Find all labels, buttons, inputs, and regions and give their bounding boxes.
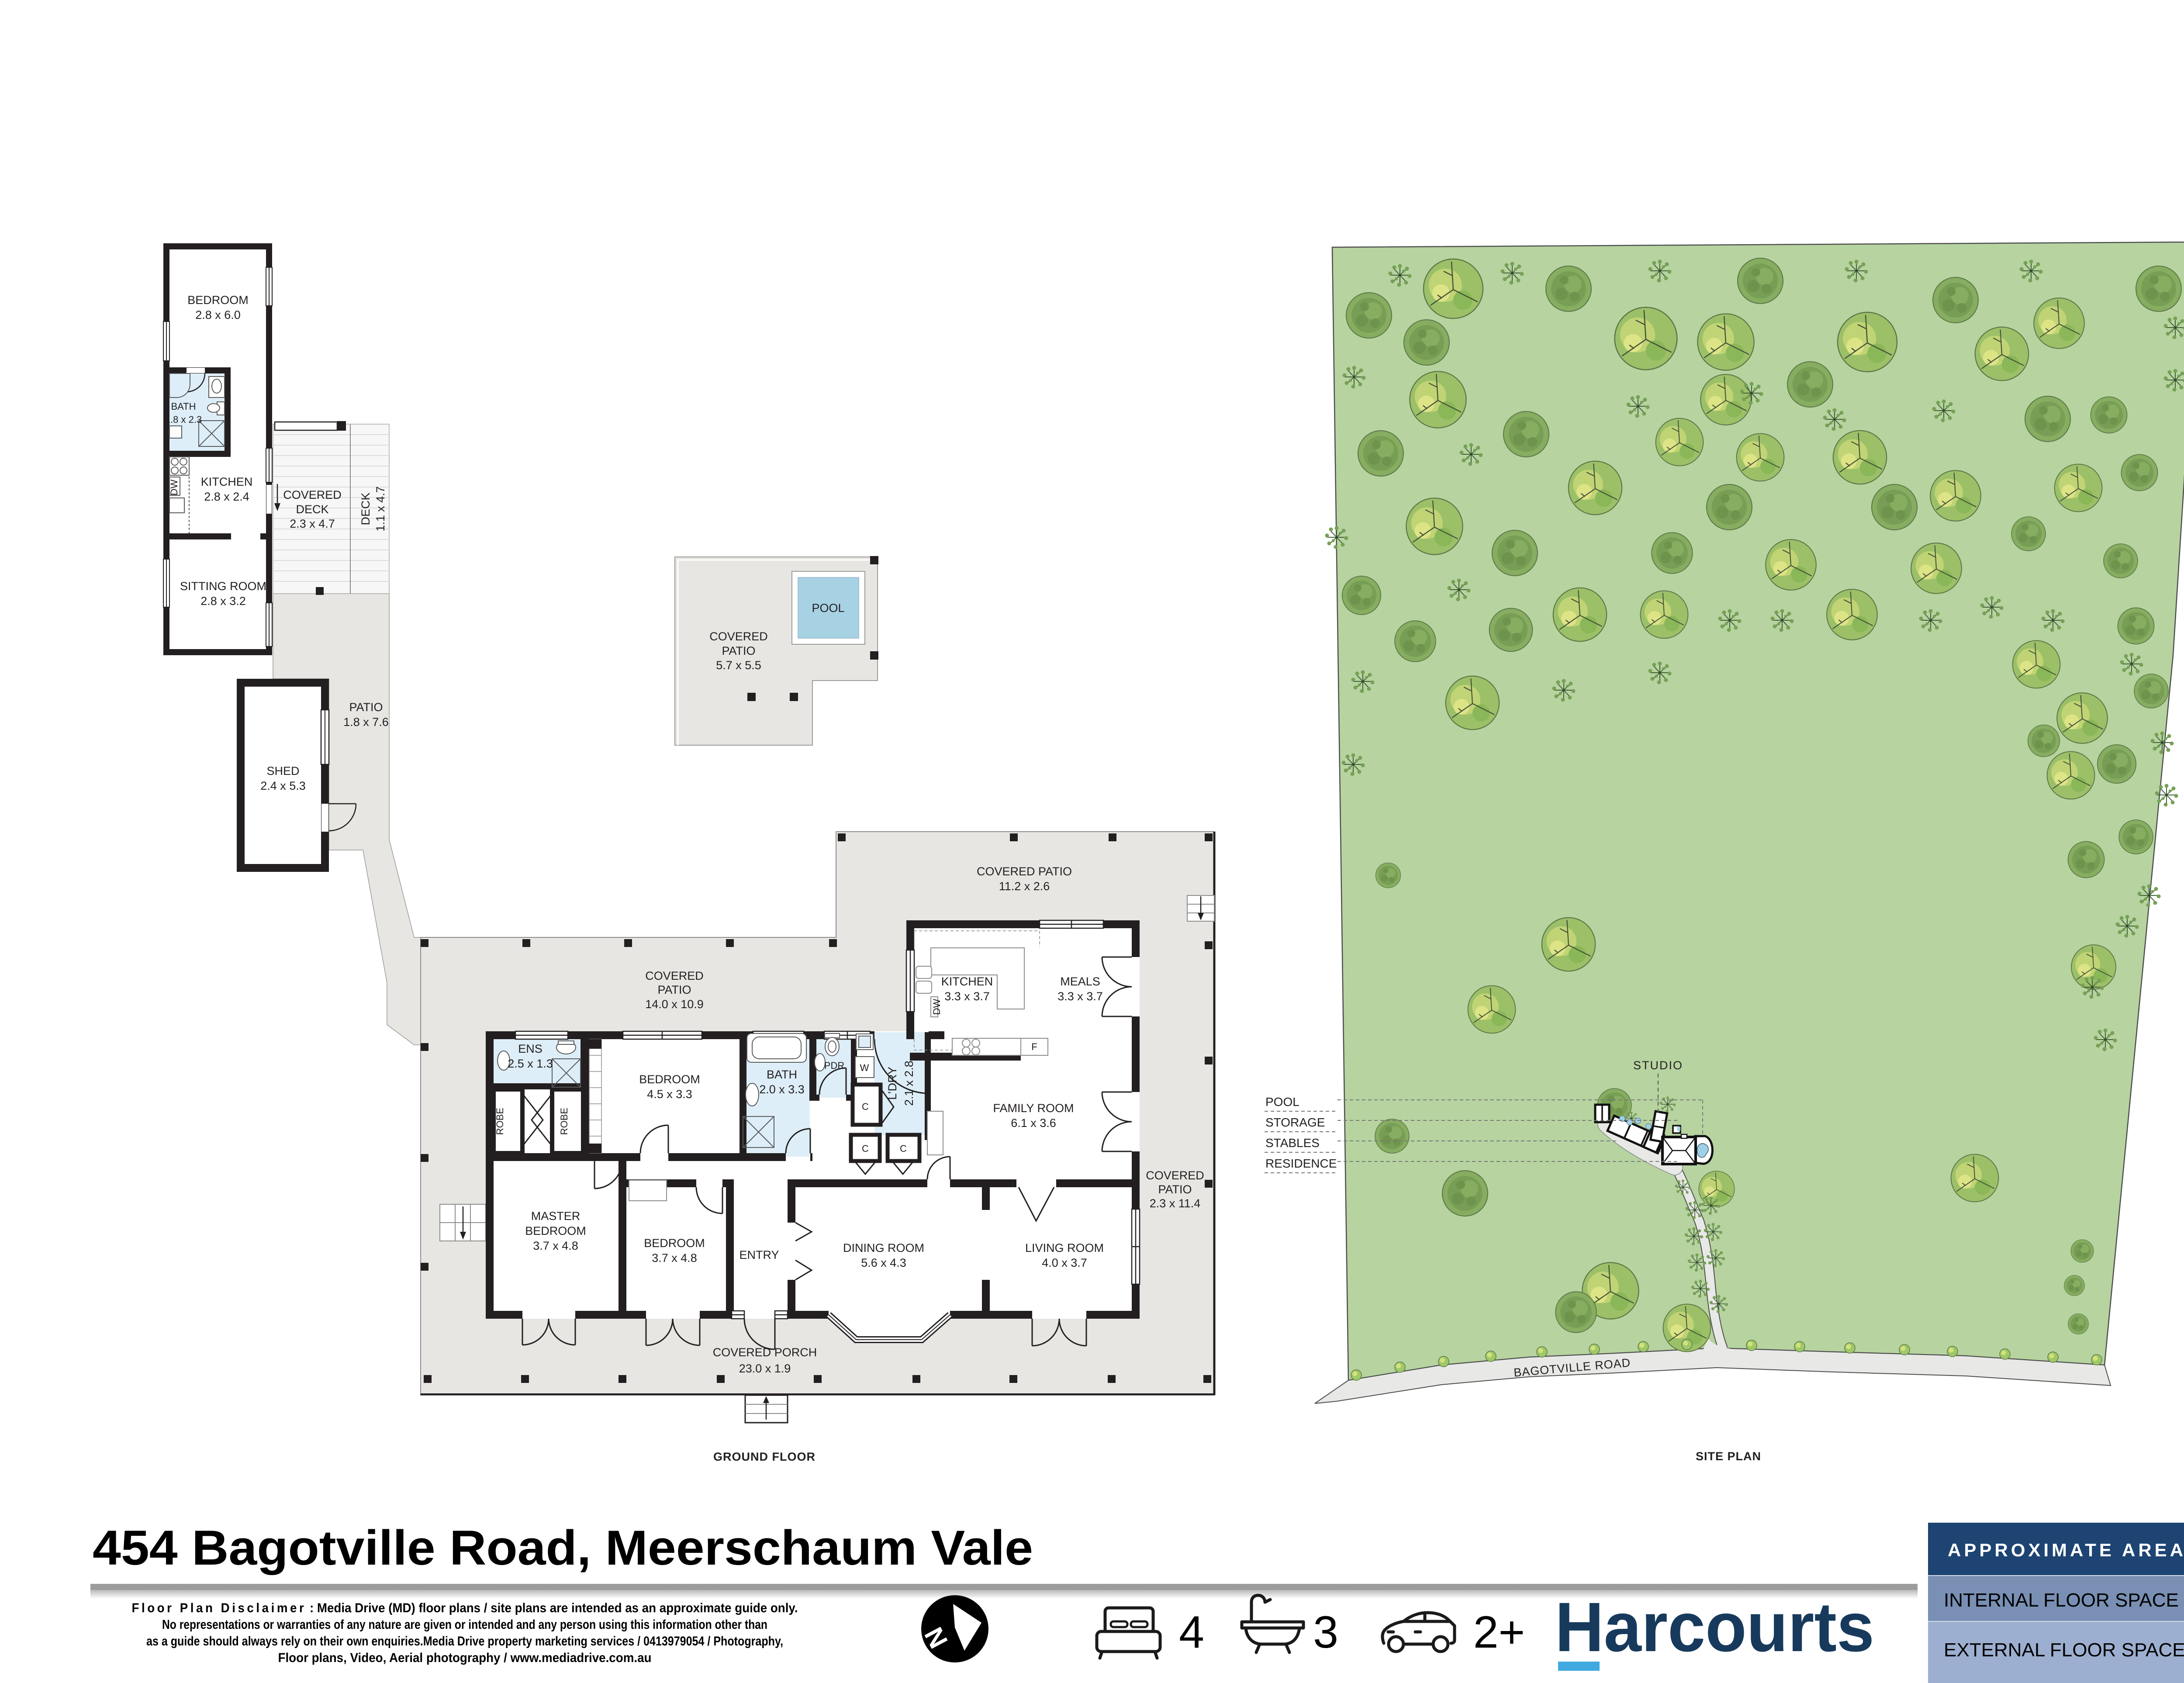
svg-text:DW: DW: [931, 999, 942, 1015]
svg-text:3: 3: [1313, 1607, 1338, 1658]
svg-text:4.0 x 3.7: 4.0 x 3.7: [1042, 1256, 1087, 1269]
svg-text:ROBE: ROBE: [494, 1108, 505, 1135]
svg-text:PATIO: PATIO: [1158, 1183, 1192, 1196]
svg-text:COVERED PATIO: COVERED PATIO: [977, 865, 1072, 878]
svg-text:BEDROOM: BEDROOM: [187, 294, 249, 307]
svg-text:BEDROOM: BEDROOM: [525, 1224, 586, 1237]
svg-text:ENS: ENS: [518, 1042, 543, 1055]
svg-text:DINING ROOM: DINING ROOM: [843, 1241, 924, 1254]
svg-text:1.1 x 4.7: 1.1 x 4.7: [374, 486, 387, 532]
svg-text:ENTRY: ENTRY: [739, 1248, 779, 1261]
svg-text:2.0 x 3.3: 2.0 x 3.3: [759, 1083, 805, 1096]
svg-text:KITCHEN: KITCHEN: [941, 975, 993, 988]
svg-text:3.7 x 4.8: 3.7 x 4.8: [533, 1239, 578, 1252]
svg-text:3.3 x 3.7: 3.3 x 3.7: [944, 990, 990, 1003]
svg-text:3.3 x 3.7: 3.3 x 3.7: [1057, 990, 1103, 1003]
svg-text:Floor Plan Disclaimer : Media: Floor Plan Disclaimer : Media Drive (MD)…: [132, 1601, 798, 1615]
svg-text:COVERED: COVERED: [645, 969, 704, 982]
svg-text:2.8 x 2.4: 2.8 x 2.4: [204, 490, 249, 503]
svg-text:W: W: [860, 1062, 869, 1073]
svg-text:6.1 x 3.6: 6.1 x 3.6: [1011, 1116, 1056, 1130]
svg-text:No representations or warranti: No representations or warranties of any …: [162, 1617, 767, 1632]
svg-text:L’DRY: L’DRY: [886, 1067, 899, 1100]
svg-text:DECK: DECK: [359, 492, 372, 525]
svg-text:STORAGE: STORAGE: [1265, 1116, 1325, 1129]
svg-text:2.1 x 2.8: 2.1 x 2.8: [902, 1061, 916, 1106]
svg-text:POOL: POOL: [812, 601, 844, 615]
svg-text:Harcourts: Harcourts: [1555, 1588, 1874, 1666]
svg-text:BEDROOM: BEDROOM: [644, 1237, 705, 1250]
svg-text:EXTERNAL FLOOR SPACE - 232m²: EXTERNAL FLOOR SPACE - 232m²: [1944, 1639, 2184, 1661]
svg-text:BEDROOM: BEDROOM: [639, 1073, 700, 1086]
svg-text:COVERED: COVERED: [1146, 1169, 1204, 1182]
svg-text:5.7 x 5.5: 5.7 x 5.5: [716, 659, 761, 672]
svg-text:11.2 x 2.6: 11.2 x 2.6: [999, 880, 1050, 893]
svg-text:DW: DW: [169, 479, 180, 495]
svg-text:as a guide should always rely: as a guide should always rely on their o…: [146, 1634, 783, 1648]
svg-text:2+: 2+: [1473, 1607, 1525, 1658]
svg-text:2.3 x 4.7: 2.3 x 4.7: [290, 517, 335, 530]
svg-text:FAMILY ROOM: FAMILY ROOM: [993, 1102, 1074, 1115]
svg-text:C: C: [862, 1101, 869, 1112]
svg-text:GROUND FLOOR: GROUND FLOOR: [713, 1450, 816, 1463]
svg-text:PDR: PDR: [824, 1060, 844, 1071]
svg-text:SHED: SHED: [266, 764, 299, 778]
svg-text:23.0 x 1.9: 23.0 x 1.9: [739, 1362, 791, 1375]
svg-text:MEALS: MEALS: [1060, 975, 1100, 988]
svg-text:F: F: [1031, 1041, 1037, 1052]
svg-text:BATH: BATH: [171, 401, 196, 412]
svg-text:PATIO: PATIO: [349, 701, 383, 714]
svg-text:RESIDENCE: RESIDENCE: [1265, 1157, 1337, 1170]
svg-text:C: C: [862, 1143, 869, 1154]
svg-text:2.8 x 6.0: 2.8 x 6.0: [195, 308, 241, 321]
svg-text:ROBE: ROBE: [559, 1108, 570, 1135]
svg-text:2.5 x 1.3: 2.5 x 1.3: [508, 1057, 553, 1070]
svg-text:PATIO: PATIO: [722, 644, 755, 657]
svg-text:LIVING ROOM: LIVING ROOM: [1025, 1241, 1104, 1254]
svg-text:C: C: [900, 1143, 907, 1154]
svg-text:Floor plans, Video, Aerial ph: Floor plans, Video, Aerial photography /…: [278, 1651, 652, 1665]
svg-text:1.8 x 7.6: 1.8 x 7.6: [343, 715, 389, 729]
svg-text:454 Bagotville Road, Meerschau: 454 Bagotville Road, Meerschaum Vale: [93, 1521, 1033, 1575]
svg-text:STABLES: STABLES: [1265, 1136, 1320, 1150]
svg-text:STUDIO: STUDIO: [1633, 1059, 1683, 1072]
svg-text:KITCHEN: KITCHEN: [201, 475, 253, 488]
svg-text:14.0 x 10.9: 14.0 x 10.9: [645, 998, 704, 1011]
svg-text:MASTER: MASTER: [531, 1210, 581, 1223]
svg-text:COVERED: COVERED: [709, 630, 768, 643]
svg-text:SITTING ROOM: SITTING ROOM: [180, 580, 266, 593]
svg-text:PATIO: PATIO: [657, 983, 691, 996]
svg-text:4: 4: [1179, 1607, 1204, 1658]
svg-text:COVERED PORCH: COVERED PORCH: [713, 1346, 817, 1359]
svg-text:5.6 x 4.3: 5.6 x 4.3: [861, 1256, 906, 1269]
svg-text:POOL: POOL: [1265, 1095, 1299, 1109]
svg-text:3.7 x 4.8: 3.7 x 4.8: [652, 1251, 697, 1265]
svg-text:COVERED: COVERED: [283, 488, 342, 501]
svg-text:2.4 x 5.3: 2.4 x 5.3: [260, 779, 306, 792]
svg-text:SITE PLAN: SITE PLAN: [1696, 1450, 1761, 1463]
svg-text:APPROXIMATE AREAS: APPROXIMATE AREAS: [1948, 1540, 2184, 1560]
svg-text:BATH: BATH: [767, 1068, 797, 1081]
svg-text:4.5 x 3.3: 4.5 x 3.3: [647, 1088, 692, 1101]
svg-text:1.8 x 2.3: 1.8 x 2.3: [165, 414, 202, 425]
svg-text:DECK: DECK: [296, 503, 328, 516]
svg-text:2.3 x 11.4: 2.3 x 11.4: [1150, 1197, 1201, 1210]
svg-text:INTERNAL FLOOR SPACE - 194m²: INTERNAL FLOOR SPACE - 194m²: [1944, 1590, 2184, 1611]
svg-text:2.8 x 3.2: 2.8 x 3.2: [200, 594, 246, 608]
